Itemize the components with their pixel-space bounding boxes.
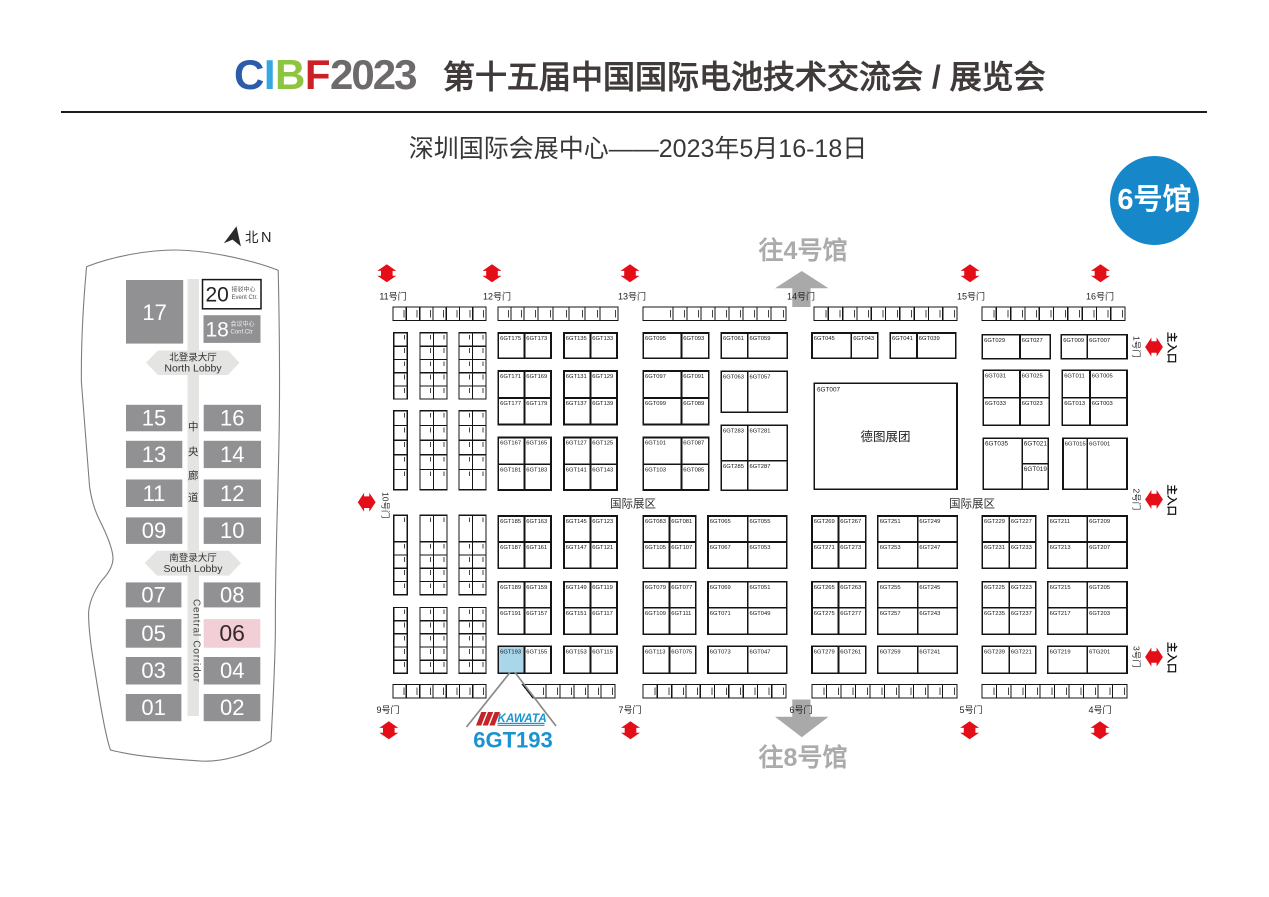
svg-text:6GT125: 6GT125 <box>592 441 613 447</box>
svg-text:6GT003: 6GT003 <box>1092 401 1113 407</box>
svg-text:6GT277: 6GT277 <box>840 611 861 617</box>
svg-text:14号门: 14号门 <box>787 291 815 302</box>
svg-text:6GT187: 6GT187 <box>500 545 521 551</box>
svg-text:中: 中 <box>188 420 199 433</box>
svg-text:6GT137: 6GT137 <box>566 401 587 407</box>
svg-text:05: 05 <box>141 621 165 646</box>
svg-text:08: 08 <box>220 582 244 607</box>
svg-text:6GT231: 6GT231 <box>984 545 1005 551</box>
svg-text:6GT007: 6GT007 <box>1089 338 1110 344</box>
svg-text:6GT009: 6GT009 <box>1063 338 1084 344</box>
svg-text:6GT119: 6GT119 <box>592 585 613 591</box>
svg-text:6GT157: 6GT157 <box>526 611 547 617</box>
svg-text:6GT245: 6GT245 <box>919 585 940 591</box>
svg-text:北: 北 <box>245 230 259 245</box>
svg-text:国际展区: 国际展区 <box>610 498 656 511</box>
svg-text:央: 央 <box>188 445 199 458</box>
svg-text:6GT207: 6GT207 <box>1089 545 1110 551</box>
svg-text:18: 18 <box>206 319 229 342</box>
svg-text:6GT117: 6GT117 <box>592 611 613 617</box>
svg-text:6GT145: 6GT145 <box>566 519 587 525</box>
svg-text:10号门: 10号门 <box>381 492 391 518</box>
svg-text:6GT127: 6GT127 <box>566 441 587 447</box>
svg-text:6GT095: 6GT095 <box>645 336 666 342</box>
svg-text:6GT189: 6GT189 <box>500 585 521 591</box>
svg-text:6GT159: 6GT159 <box>526 585 547 591</box>
svg-text:6GT007: 6GT007 <box>817 387 841 394</box>
svg-text:6GT025: 6GT025 <box>1022 373 1043 379</box>
svg-text:6GT077: 6GT077 <box>671 585 692 591</box>
svg-text:4号门: 4号门 <box>1088 704 1111 715</box>
svg-text:South Lobby: South Lobby <box>164 563 224 575</box>
svg-text:6GT073: 6GT073 <box>710 649 731 655</box>
svg-text:6GT235: 6GT235 <box>984 611 1005 617</box>
svg-text:6GT101: 6GT101 <box>645 441 666 447</box>
svg-text:6GT287: 6GT287 <box>750 464 771 470</box>
svg-text:主入口: 主入口 <box>1166 642 1179 674</box>
svg-text:6GT177: 6GT177 <box>500 401 521 407</box>
svg-text:6GT123: 6GT123 <box>592 519 613 525</box>
svg-text:6GT243: 6GT243 <box>919 611 940 617</box>
svg-text:6GT107: 6GT107 <box>671 545 692 551</box>
svg-text:6GT209: 6GT209 <box>1089 519 1110 525</box>
svg-text:6GT225: 6GT225 <box>984 585 1005 591</box>
svg-text:6GT063: 6GT063 <box>723 374 744 380</box>
svg-text:6GT109: 6GT109 <box>645 611 666 617</box>
svg-text:6GT233: 6GT233 <box>1011 545 1032 551</box>
svg-text:6GT075: 6GT075 <box>671 649 692 655</box>
svg-text:13号门: 13号门 <box>618 291 646 302</box>
svg-text:6GT267: 6GT267 <box>840 519 861 525</box>
svg-text:9号门: 9号门 <box>376 704 399 715</box>
svg-text:16号门: 16号门 <box>1086 291 1114 302</box>
svg-text:道: 道 <box>188 491 199 504</box>
svg-text:Event Ctr.: Event Ctr. <box>232 295 259 301</box>
svg-text:6GT085: 6GT085 <box>683 468 704 474</box>
svg-text:6GT255: 6GT255 <box>880 585 901 591</box>
svg-text:6GT065: 6GT065 <box>710 519 731 525</box>
svg-text:6GT015: 6GT015 <box>1065 441 1086 447</box>
svg-text:6GT131: 6GT131 <box>566 374 587 380</box>
svg-text:6GT253: 6GT253 <box>880 545 901 551</box>
svg-text:6GT241: 6GT241 <box>919 649 940 655</box>
svg-text:会议中心: 会议中心 <box>231 320 255 328</box>
svg-text:6TG201: 6TG201 <box>1089 649 1110 655</box>
svg-text:6GT227: 6GT227 <box>1011 519 1032 525</box>
svg-text:12: 12 <box>220 481 244 506</box>
svg-text:01: 01 <box>141 695 165 720</box>
svg-text:06: 06 <box>219 620 245 646</box>
svg-text:6GT083: 6GT083 <box>645 519 666 525</box>
svg-text:6GT249: 6GT249 <box>919 519 940 525</box>
svg-text:6GT045: 6GT045 <box>814 336 835 342</box>
svg-text:6GT141: 6GT141 <box>566 468 587 474</box>
svg-text:5号门: 5号门 <box>959 704 982 715</box>
svg-text:6GT113: 6GT113 <box>645 649 666 655</box>
svg-text:11号门: 11号门 <box>379 291 406 302</box>
svg-text:6GT151: 6GT151 <box>566 611 587 617</box>
svg-text:6GT229: 6GT229 <box>984 519 1005 525</box>
svg-text:12号门: 12号门 <box>483 291 511 302</box>
svg-text:6GT173: 6GT173 <box>526 336 547 342</box>
svg-text:6GT179: 6GT179 <box>526 401 547 407</box>
svg-text:主入口: 主入口 <box>1166 485 1179 517</box>
svg-text:6GT149: 6GT149 <box>566 585 587 591</box>
svg-text:1号门: 1号门 <box>1132 336 1142 358</box>
svg-text:6GT019: 6GT019 <box>1024 466 1048 473</box>
svg-text:6GT221: 6GT221 <box>1011 649 1032 655</box>
svg-text:6GT035: 6GT035 <box>985 440 1009 447</box>
svg-text:07: 07 <box>141 582 165 607</box>
svg-text:6GT051: 6GT051 <box>750 585 771 591</box>
svg-text:6GT171: 6GT171 <box>500 374 521 380</box>
svg-text:6GT139: 6GT139 <box>592 401 613 407</box>
svg-text:6GT001: 6GT001 <box>1089 441 1110 447</box>
svg-text:13: 13 <box>142 442 166 467</box>
svg-text:廊: 廊 <box>188 469 199 482</box>
svg-text:6GT013: 6GT013 <box>1064 401 1085 407</box>
svg-text:6GT121: 6GT121 <box>592 545 613 551</box>
svg-text:6GT205: 6GT205 <box>1089 585 1110 591</box>
svg-text:6GT057: 6GT057 <box>750 374 771 380</box>
svg-text:6GT053: 6GT053 <box>750 545 771 551</box>
svg-text:15: 15 <box>142 406 166 431</box>
svg-text:6GT275: 6GT275 <box>814 611 835 617</box>
svg-text:Conf.Ctr: Conf.Ctr <box>231 330 253 336</box>
svg-text:接驳中心: 接驳中心 <box>232 286 256 294</box>
svg-text:往8号馆: 往8号馆 <box>759 743 848 772</box>
svg-text:6GT071: 6GT071 <box>710 611 731 617</box>
svg-text:6GT061: 6GT061 <box>723 336 744 342</box>
svg-text:6GT217: 6GT217 <box>1050 611 1071 617</box>
svg-text:02: 02 <box>220 695 244 720</box>
svg-text:6GT023: 6GT023 <box>1022 401 1043 407</box>
svg-text:6GT021: 6GT021 <box>1024 440 1048 447</box>
svg-text:6GT247: 6GT247 <box>919 545 940 551</box>
svg-text:6GT039: 6GT039 <box>919 336 940 342</box>
svg-text:14: 14 <box>220 442 244 467</box>
svg-text:6GT043: 6GT043 <box>853 336 874 342</box>
svg-text:11: 11 <box>143 481 166 506</box>
svg-text:6GT237: 6GT237 <box>1011 611 1032 617</box>
svg-text:6GT143: 6GT143 <box>592 468 613 474</box>
svg-text:6GT193: 6GT193 <box>500 649 521 655</box>
svg-text:20: 20 <box>206 284 229 307</box>
svg-text:6GT279: 6GT279 <box>814 649 835 655</box>
svg-text:N: N <box>261 230 271 246</box>
svg-text:6GT047: 6GT047 <box>750 649 771 655</box>
svg-text:6GT103: 6GT103 <box>645 468 666 474</box>
svg-text:6GT215: 6GT215 <box>1050 585 1071 591</box>
svg-text:6GT271: 6GT271 <box>814 545 835 551</box>
svg-text:6GT185: 6GT185 <box>500 519 521 525</box>
svg-text:6GT251: 6GT251 <box>880 519 901 525</box>
svg-text:6GT041: 6GT041 <box>892 336 913 342</box>
svg-text:6GT203: 6GT203 <box>1089 611 1110 617</box>
svg-text:6GT163: 6GT163 <box>526 519 547 525</box>
svg-text:6GT135: 6GT135 <box>566 336 587 342</box>
svg-text:15号门: 15号门 <box>957 291 985 302</box>
svg-text:6GT115: 6GT115 <box>592 649 613 655</box>
svg-text:6GT175: 6GT175 <box>500 336 521 342</box>
svg-text:6GT213: 6GT213 <box>1050 545 1071 551</box>
svg-text:6GT181: 6GT181 <box>500 468 521 474</box>
svg-text:6GT219: 6GT219 <box>1050 649 1071 655</box>
svg-text:10: 10 <box>220 518 244 543</box>
svg-text:6GT285: 6GT285 <box>723 464 744 470</box>
svg-text:6GT033: 6GT033 <box>985 401 1006 407</box>
svg-text:6GT011: 6GT011 <box>1064 373 1085 379</box>
svg-text:6GT029: 6GT029 <box>984 338 1005 344</box>
svg-text:2号门: 2号门 <box>1132 489 1142 511</box>
svg-text:6GT059: 6GT059 <box>750 336 771 342</box>
svg-text:6GT191: 6GT191 <box>500 611 521 617</box>
svg-text:6GT087: 6GT087 <box>683 441 704 447</box>
svg-text:6GT005: 6GT005 <box>1092 373 1113 379</box>
svg-text:North Lobby: North Lobby <box>164 363 222 375</box>
svg-text:04: 04 <box>220 658 244 683</box>
svg-text:6GT133: 6GT133 <box>592 336 613 342</box>
svg-text:6GT081: 6GT081 <box>671 519 692 525</box>
svg-text:6GT183: 6GT183 <box>526 468 547 474</box>
svg-text:6GT239: 6GT239 <box>984 649 1005 655</box>
svg-text:6GT273: 6GT273 <box>840 545 861 551</box>
svg-text:6GT165: 6GT165 <box>526 441 547 447</box>
svg-text:德图展团: 德图展团 <box>860 429 910 444</box>
svg-text:7号门: 7号门 <box>618 704 641 715</box>
svg-text:6GT089: 6GT089 <box>683 401 704 407</box>
svg-text:6GT223: 6GT223 <box>1011 585 1032 591</box>
svg-text:6GT069: 6GT069 <box>710 585 731 591</box>
svg-text:6GT257: 6GT257 <box>880 611 901 617</box>
svg-text:国际展区: 国际展区 <box>949 498 995 511</box>
svg-text:16: 16 <box>220 406 244 431</box>
svg-text:6GT097: 6GT097 <box>645 374 666 380</box>
svg-text:6GT099: 6GT099 <box>645 401 666 407</box>
svg-text:3号门: 3号门 <box>1132 646 1142 668</box>
svg-text:6GT091: 6GT091 <box>683 374 704 380</box>
svg-text:往4号馆: 往4号馆 <box>759 236 848 265</box>
svg-text:主入口: 主入口 <box>1166 332 1179 364</box>
svg-text:6GT261: 6GT261 <box>840 649 861 655</box>
svg-text:6GT263: 6GT263 <box>840 585 861 591</box>
svg-text:6GT129: 6GT129 <box>592 374 613 380</box>
svg-text:Central Corridor: Central Corridor <box>191 599 202 683</box>
svg-text:6GT093: 6GT093 <box>683 336 704 342</box>
svg-text:6GT281: 6GT281 <box>750 429 771 435</box>
svg-text:6GT167: 6GT167 <box>500 441 521 447</box>
svg-text:6GT049: 6GT049 <box>750 611 771 617</box>
svg-text:6GT155: 6GT155 <box>526 649 547 655</box>
svg-text:6GT111: 6GT111 <box>671 611 691 617</box>
svg-text:17: 17 <box>142 300 166 325</box>
svg-text:03: 03 <box>141 658 165 683</box>
svg-text:6GT031: 6GT031 <box>985 373 1006 379</box>
svg-text:6GT269: 6GT269 <box>814 519 835 525</box>
svg-text:6GT067: 6GT067 <box>710 545 731 551</box>
svg-text:6GT055: 6GT055 <box>750 519 771 525</box>
svg-text:6GT153: 6GT153 <box>566 649 587 655</box>
svg-text:6GT259: 6GT259 <box>880 649 901 655</box>
svg-text:09: 09 <box>142 518 166 543</box>
svg-text:6GT027: 6GT027 <box>1022 338 1043 344</box>
svg-text:6GT079: 6GT079 <box>645 585 666 591</box>
svg-text:6GT161: 6GT161 <box>526 545 547 551</box>
svg-text:6号门: 6号门 <box>789 704 812 715</box>
svg-text:6GT265: 6GT265 <box>814 585 835 591</box>
svg-text:6GT105: 6GT105 <box>645 545 666 551</box>
svg-text:6GT283: 6GT283 <box>723 429 744 435</box>
svg-text:6GT169: 6GT169 <box>526 374 547 380</box>
svg-text:6GT147: 6GT147 <box>566 545 587 551</box>
svg-text:6GT193: 6GT193 <box>473 728 553 753</box>
svg-text:6GT211: 6GT211 <box>1050 519 1071 525</box>
